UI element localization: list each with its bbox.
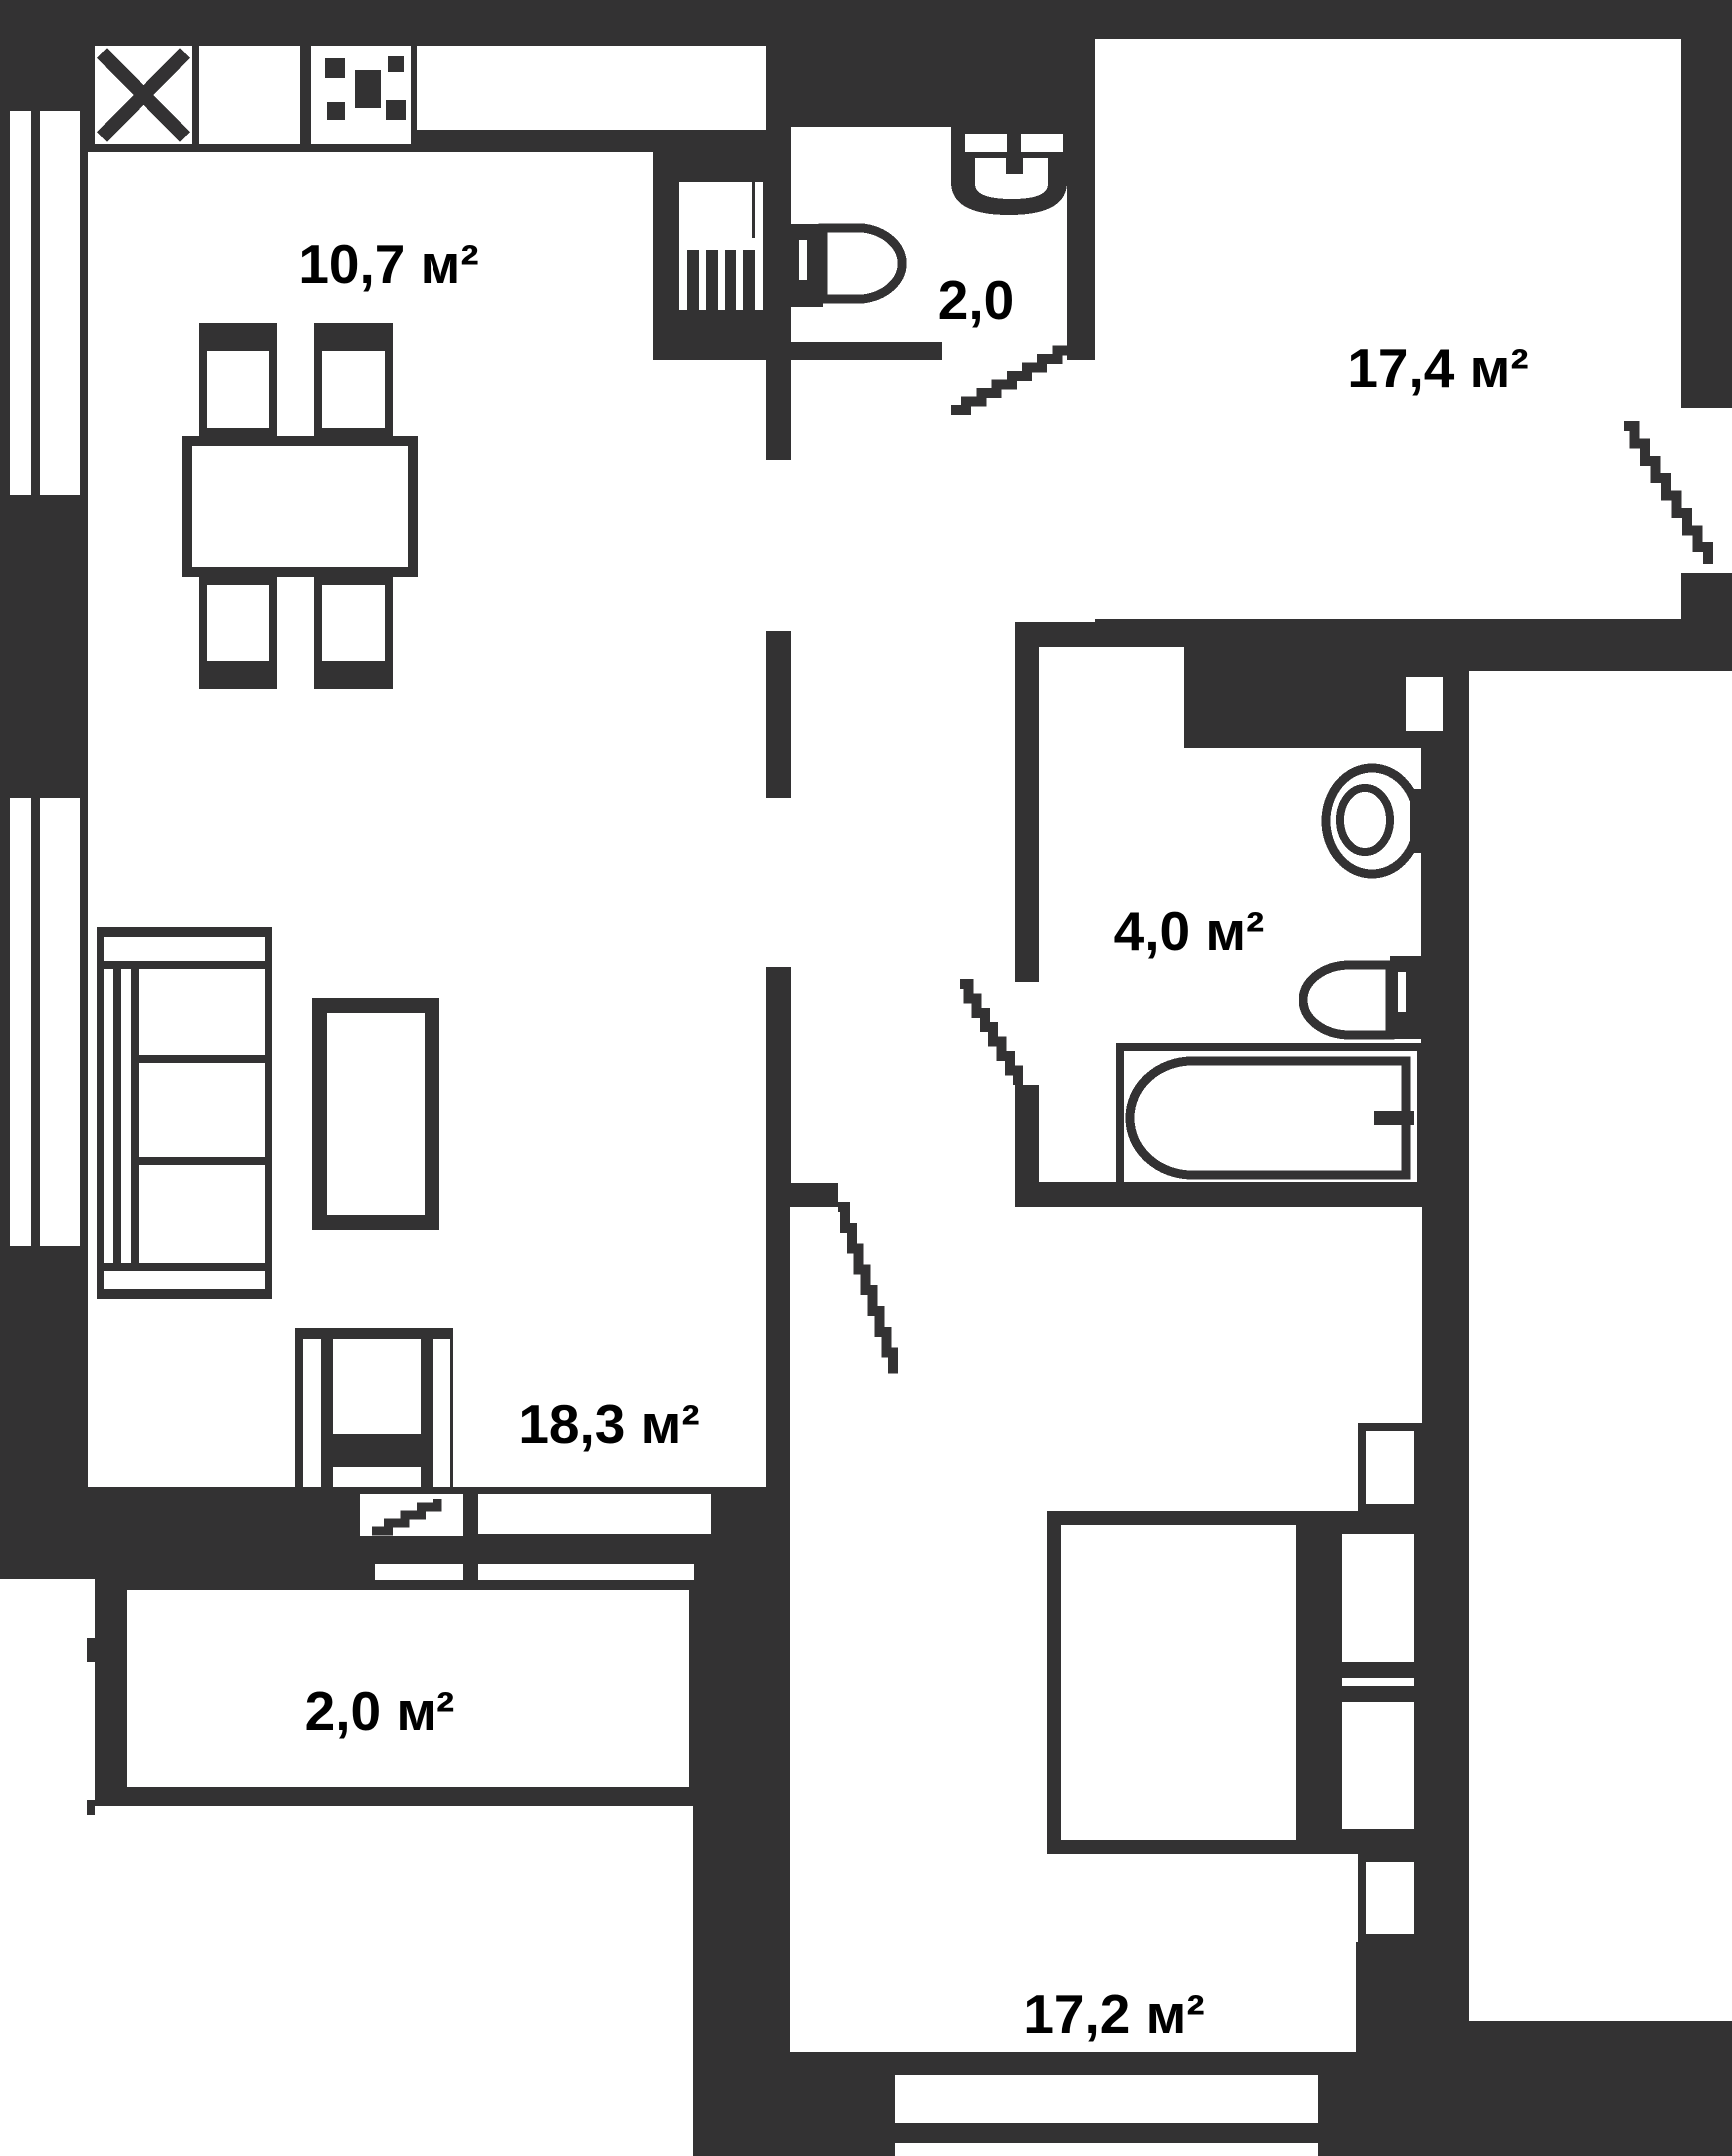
svg-text:17,4 м²: 17,4 м² xyxy=(1347,337,1528,399)
svg-text:18,3 м²: 18,3 м² xyxy=(518,1393,699,1455)
svg-text:17,2 м²: 17,2 м² xyxy=(1023,1983,1204,2045)
svg-text:2,0 м²: 2,0 м² xyxy=(305,1680,455,1742)
svg-text:10,7 м²: 10,7 м² xyxy=(298,233,478,295)
svg-text:4,0 м²: 4,0 м² xyxy=(1114,900,1265,962)
svg-text:2,0: 2,0 xyxy=(938,269,1014,331)
